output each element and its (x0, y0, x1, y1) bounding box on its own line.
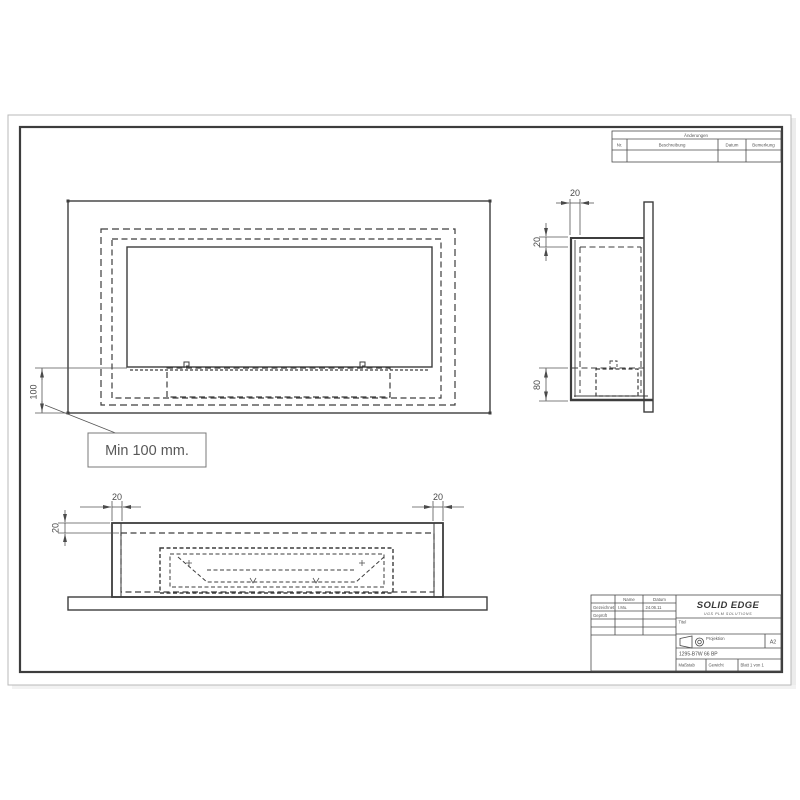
titleblock-scale-label: Maßstab (679, 663, 696, 668)
dim-bottom-front-text: 20 (51, 523, 61, 533)
revision-col-nr: Nr. (617, 143, 623, 148)
min-100-label-text: Min 100 mm. (105, 443, 189, 459)
dim-side-bottom-text: 80 (532, 380, 542, 390)
solid-edge-logo-text: SOLID EDGE (697, 600, 760, 611)
revision-col-date: Datum (726, 143, 739, 148)
titleblock-drawn-name: I.Mu. (618, 605, 627, 610)
revision-table-title: Änderungen (684, 133, 708, 138)
titleblock-checked-label: Geprüft (593, 613, 608, 618)
dim-side-depth-text: 20 (570, 188, 580, 198)
drawing-canvas: Änderungen Nr. Beschreibung Datum Bemerk… (0, 0, 800, 800)
titleblock-drawn-date: 24.06.11 (646, 605, 663, 610)
solid-edge-logo: SOLID EDGE UGS PLM SOLUTIONS (697, 600, 760, 616)
dim-bottom-left-text: 20 (112, 492, 122, 502)
sheet-shadow-right (791, 118, 796, 687)
scanned-cad-drawing: Änderungen Nr. Beschreibung Datum Bemerk… (0, 0, 800, 800)
titleblock-sheet-size: A2 (770, 640, 777, 646)
titleblock-weight-label: Gewicht (709, 663, 725, 668)
dim-100-text: 100 (29, 384, 39, 399)
dim-bottom-right-text: 20 (433, 492, 443, 502)
titleblock-title-label: Titel (679, 620, 687, 625)
sheet-shadow-bottom (12, 685, 796, 689)
titleblock-doc-number: 1295-B7W 66 BP (679, 652, 718, 658)
solid-edge-logo-subtitle: UGS PLM SOLUTIONS (704, 612, 752, 616)
titleblock-drawn-label: Gezeichnet (593, 605, 615, 610)
titleblock-projection-label: Projektion (706, 636, 725, 641)
titleblock-col-name: Name (623, 597, 635, 602)
revision-col-note: Bemerkung (752, 143, 775, 148)
titleblock-col-date: Datum (653, 597, 666, 602)
titleblock-sheet-label: Blatt 1 von 1 (741, 663, 765, 668)
dim-side-top-text: 20 (532, 237, 542, 247)
revision-col-description: Beschreibung (659, 143, 686, 148)
